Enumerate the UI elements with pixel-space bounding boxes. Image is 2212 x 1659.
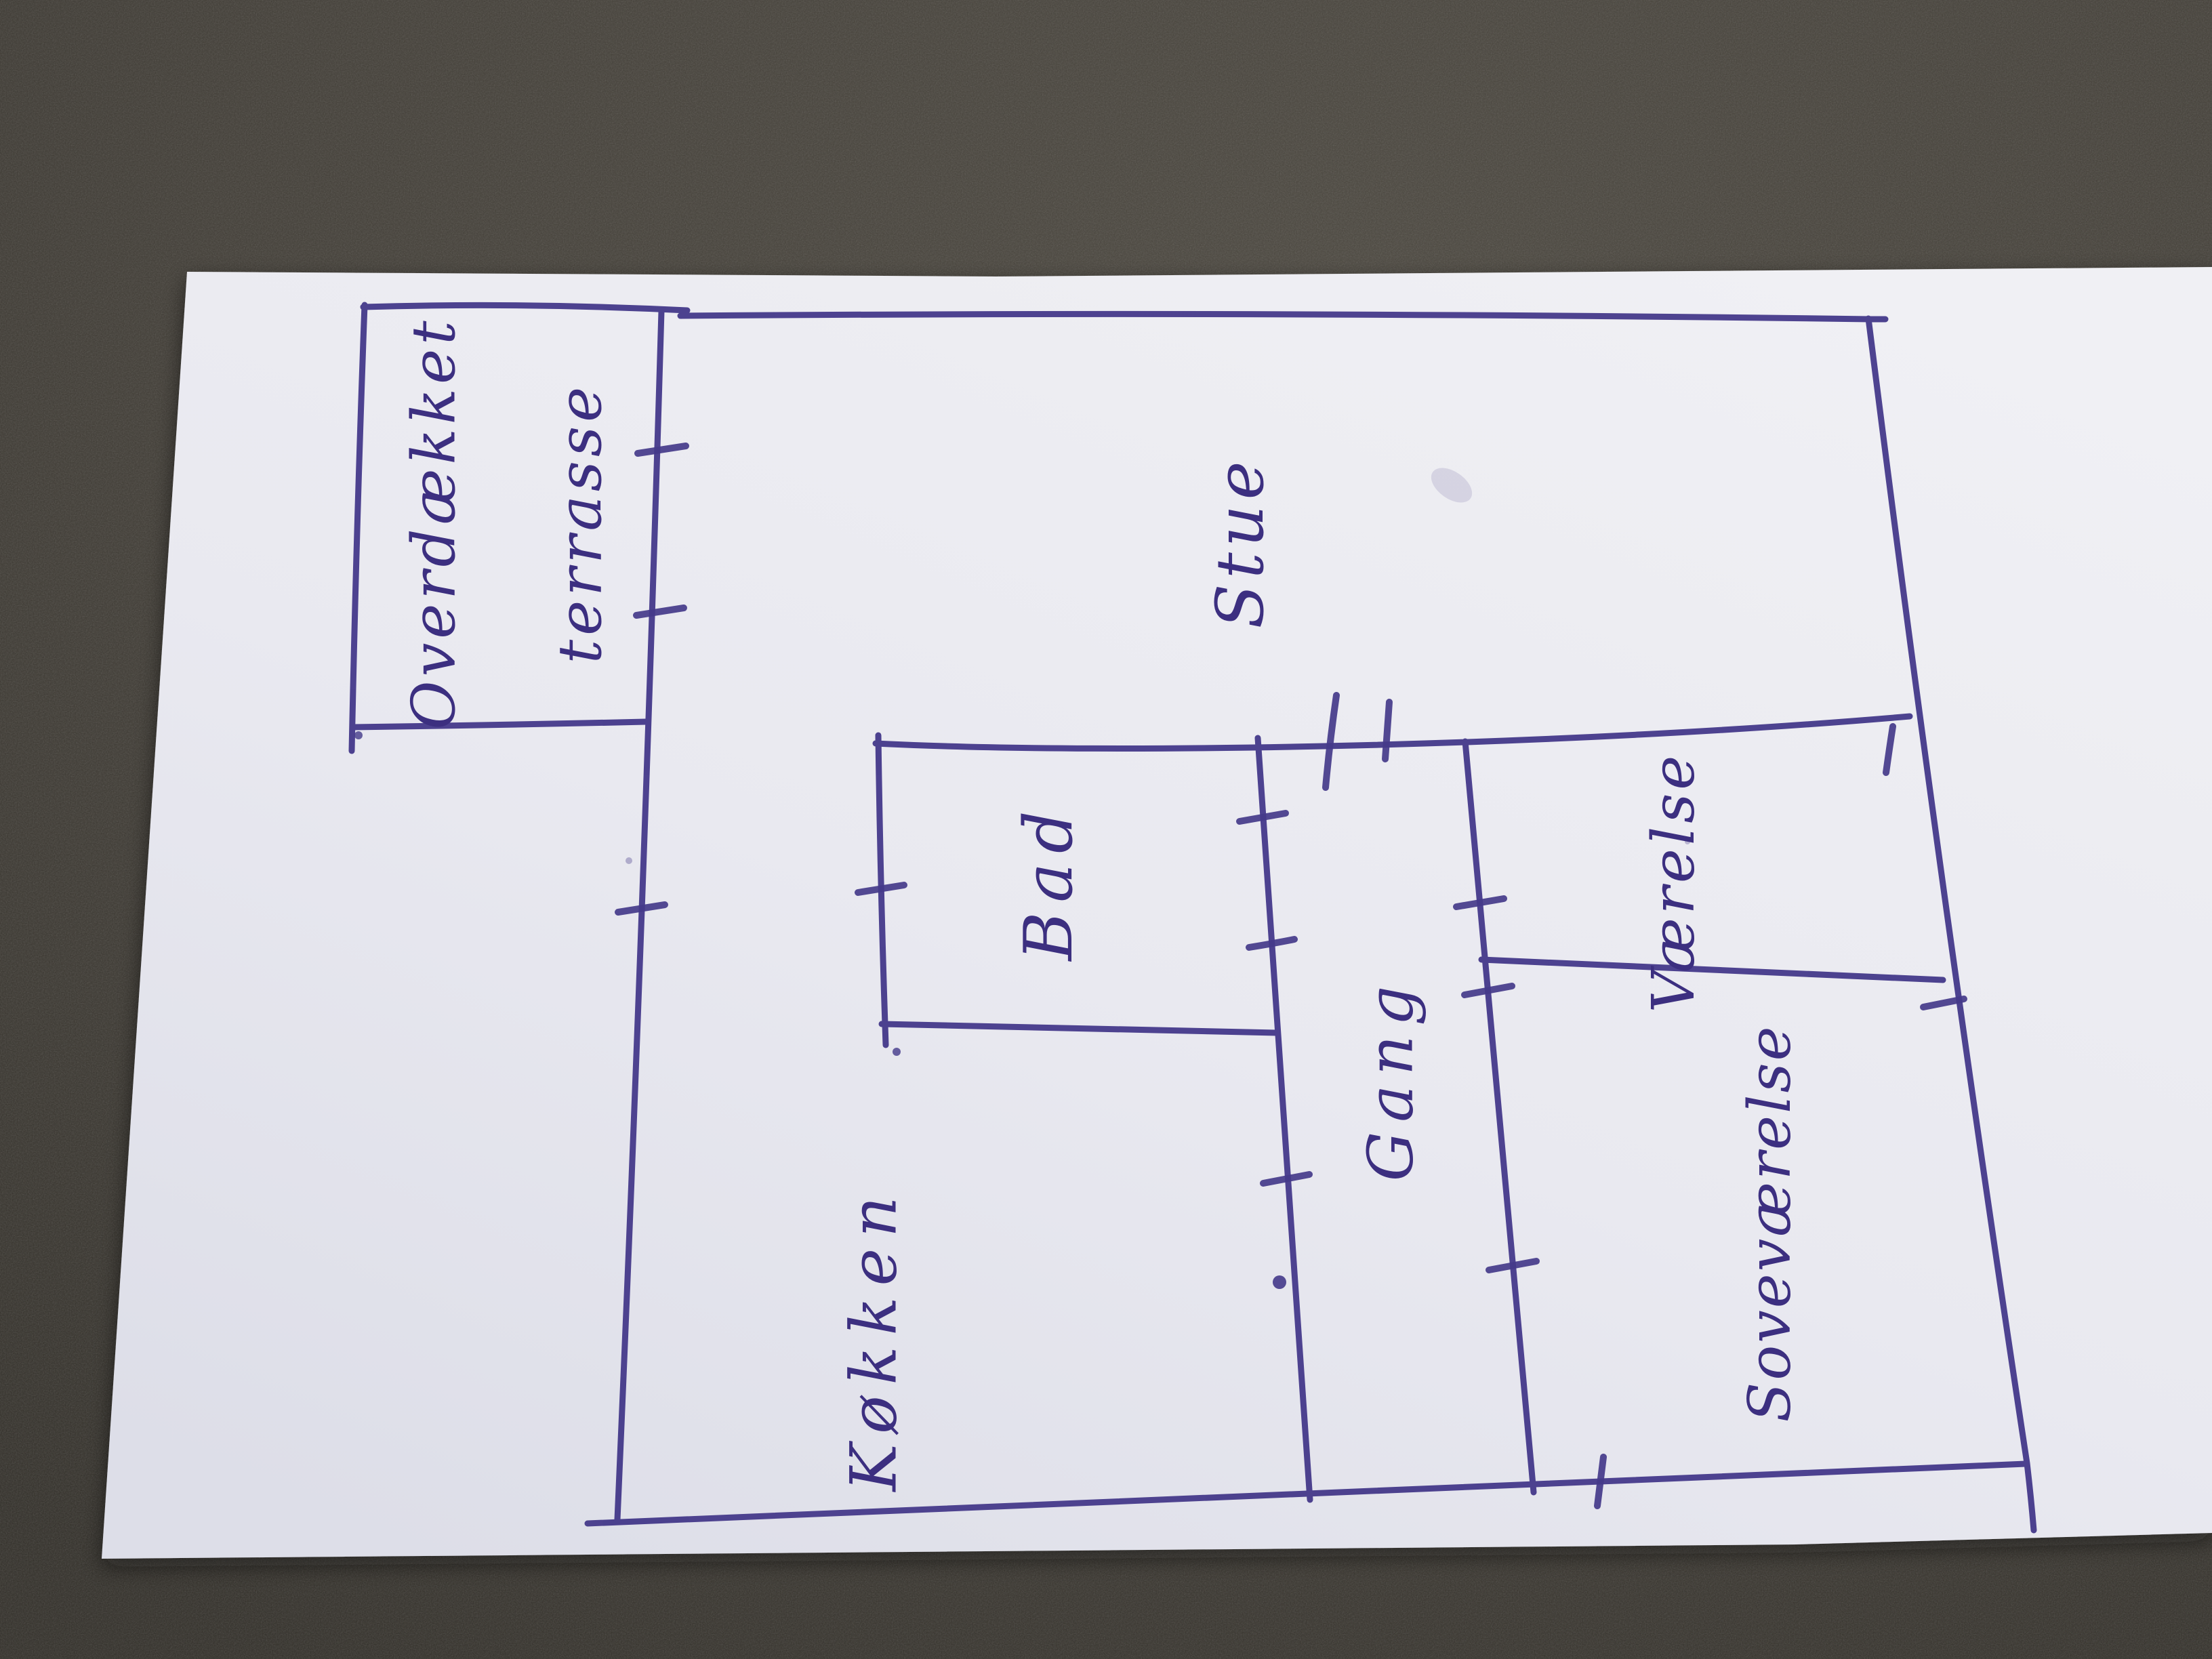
floor-plan-drawing — [0, 0, 2212, 1659]
terrace-label-line1: Overdækket — [398, 316, 468, 729]
terrace-label-line2: terrasse — [507, 316, 653, 729]
ink-blob-gang-wall — [1273, 1275, 1286, 1289]
photo-of-floor-plan: Overdækket terrasse Stue Bad Køkken Gang… — [0, 0, 2212, 1659]
ink-dot-bad — [893, 1048, 901, 1056]
tick-stue-door-2 — [1385, 702, 1389, 759]
paper-speck-1 — [626, 857, 632, 864]
ink-dot-terrace — [354, 731, 363, 739]
